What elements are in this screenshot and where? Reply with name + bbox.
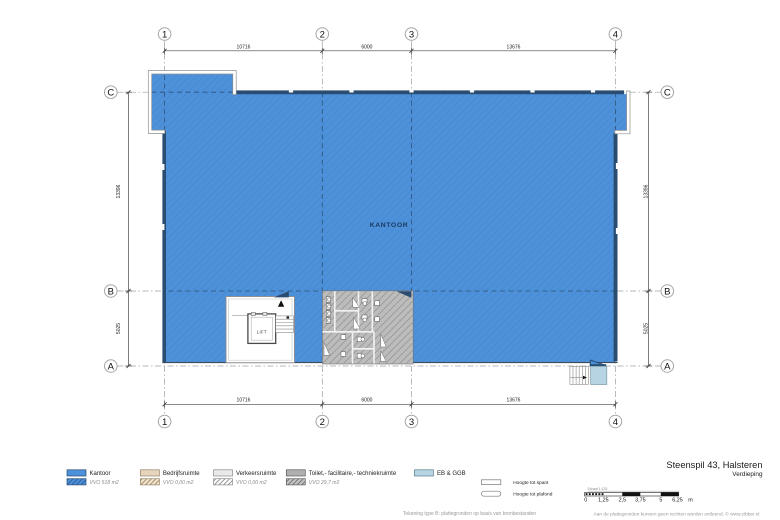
svg-text:B: B — [108, 286, 114, 297]
svg-text:Steenspil 43, Halsteren: Steenspil 43, Halsteren — [666, 460, 762, 470]
svg-text:m: m — [688, 498, 693, 504]
svg-text:Schaal 1:125: Schaal 1:125 — [588, 487, 608, 491]
svg-text:13676: 13676 — [507, 45, 521, 51]
svg-text:10716: 10716 — [237, 45, 251, 51]
svg-text:VVO 518 m2: VVO 518 m2 — [90, 480, 119, 486]
svg-text:2: 2 — [320, 417, 325, 428]
svg-text:EB & GGB: EB & GGB — [437, 471, 466, 477]
svg-text:6000: 6000 — [361, 45, 372, 51]
svg-text:2: 2 — [320, 29, 325, 40]
svg-text:1,25: 1,25 — [598, 498, 609, 504]
svg-text:C: C — [107, 88, 114, 99]
svg-text:Hoogte tot spant: Hoogte tot spant — [513, 480, 549, 486]
svg-text:C: C — [664, 88, 671, 99]
svg-text:13396: 13396 — [116, 184, 122, 198]
svg-text:VVO 0,00 m2: VVO 0,00 m2 — [163, 480, 194, 486]
svg-text:KANTOOR: KANTOOR — [370, 222, 408, 229]
svg-text:Verdieping: Verdieping — [732, 471, 763, 478]
svg-text:6,25: 6,25 — [672, 498, 683, 504]
svg-text:5025: 5025 — [116, 323, 122, 334]
svg-text:LIFT: LIFT — [257, 330, 267, 335]
svg-text:Tekening type B: plattegronden: Tekening type B: plattegronden op basis … — [403, 511, 536, 517]
svg-text:5: 5 — [659, 498, 662, 504]
svg-text:Aan de plattegronden kunnen ge: Aan de plattegronden kunnen geen rechten… — [594, 511, 760, 518]
svg-text:Verkeersruimte: Verkeersruimte — [236, 471, 277, 477]
svg-text:0: 0 — [584, 498, 587, 504]
svg-text:13676: 13676 — [507, 397, 521, 403]
svg-text:4: 4 — [613, 417, 618, 428]
svg-text:3: 3 — [409, 29, 414, 40]
svg-text:3,75: 3,75 — [635, 498, 646, 504]
svg-text:1: 1 — [162, 29, 167, 40]
svg-text:4: 4 — [613, 29, 618, 40]
svg-text:5025: 5025 — [644, 323, 650, 334]
svg-text:VVO 0,00 m2: VVO 0,00 m2 — [236, 480, 267, 486]
svg-text:1: 1 — [162, 417, 167, 428]
svg-text:A: A — [664, 361, 671, 372]
svg-text:Kantoor: Kantoor — [90, 471, 111, 477]
svg-text:6000: 6000 — [361, 397, 372, 403]
svg-text:3: 3 — [409, 417, 414, 428]
svg-text:Bedrijfsruimte: Bedrijfsruimte — [163, 471, 200, 477]
svg-text:VVO 29,7 m2: VVO 29,7 m2 — [309, 480, 340, 486]
svg-text:Hoogte tot plafond: Hoogte tot plafond — [513, 491, 553, 497]
svg-text:2,5: 2,5 — [619, 498, 627, 504]
svg-text:A: A — [108, 361, 115, 372]
svg-text:Toilet,- facilitaire,- technie: Toilet,- facilitaire,- techniekruimte — [309, 471, 397, 477]
svg-text:10716: 10716 — [237, 397, 251, 403]
svg-text:13396: 13396 — [644, 184, 650, 198]
svg-text:B: B — [664, 286, 670, 297]
